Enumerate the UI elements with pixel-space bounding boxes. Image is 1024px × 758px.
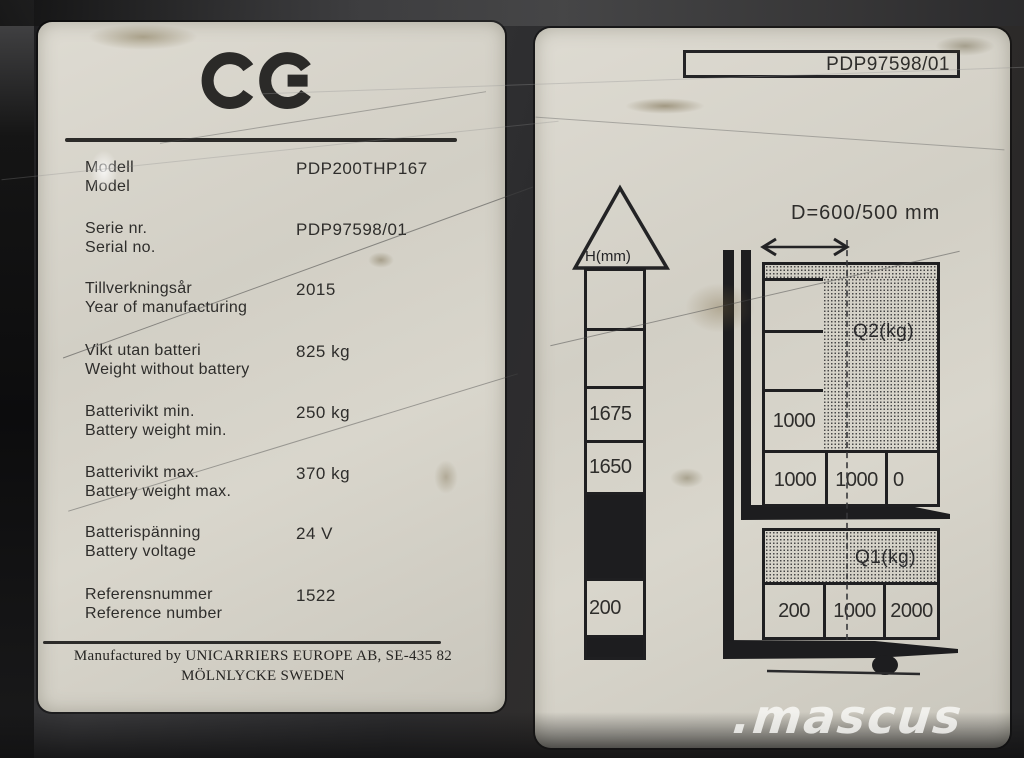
divider-line [65, 138, 457, 142]
stain [625, 98, 705, 114]
fork-tine [723, 640, 958, 659]
mast-inner-bar [741, 250, 751, 512]
mascus-watermark: .mascus [730, 690, 966, 745]
q2-cell: 1000 [765, 389, 823, 450]
q1-cell: 1000 [823, 585, 883, 637]
spec-row-serial: Serie nr. Serial no. PDP97598/01 [85, 219, 485, 257]
q2-hatch-area [823, 278, 937, 450]
photo-of-nameplates: Modell Model PDP200THP167 Serie nr. Seri… [0, 0, 1024, 758]
q1-cell: 200 [765, 585, 823, 637]
spec-row-reference: Referensnummer Reference number 1522 [85, 585, 485, 623]
label-sv: Batterispänning [85, 523, 485, 542]
q1-cell: 2000 [883, 585, 937, 637]
load-wheel-icon [872, 655, 898, 675]
capacity-plate: PDP97598/01 D=600/500 mm H(mm) 1675 [535, 28, 1010, 748]
mast-outer-bar [723, 250, 734, 647]
lift-height-scale: 1675 1650 200 [584, 268, 646, 660]
value: 825 kg [296, 342, 350, 362]
height-cell-filled [587, 492, 643, 578]
value: 370 kg [296, 464, 350, 484]
q1-title: Q1(kg) [855, 547, 916, 569]
hatch-strip [765, 265, 937, 278]
spec-row-year: Tillverkningsår Year of manufacturing 20… [85, 279, 485, 317]
label-en: Year of manufacturing [85, 298, 485, 317]
scratch-line [63, 187, 533, 359]
q2-capacity-table: Q2(kg) 1000 1000 1000 0 [762, 262, 940, 507]
label-sv: Tillverkningsår [85, 279, 485, 298]
serial-number-box: PDP97598/01 [683, 50, 960, 78]
label-en: Serial no. [85, 238, 485, 257]
d-arrowhead-left [763, 239, 776, 255]
q1-capacity-table: Q1(kg) 200 1000 2000 [762, 528, 940, 640]
q2-cell: 1000 [825, 450, 885, 507]
q2-cell: 0 [885, 450, 937, 507]
spec-plate: Modell Model PDP200THP167 Serie nr. Seri… [38, 22, 505, 712]
height-cell [587, 328, 643, 386]
load-center-dashed-line [846, 240, 848, 640]
value: PDP97598/01 [296, 220, 407, 240]
ce-mark-icon [198, 40, 326, 122]
stain [685, 283, 755, 333]
label-en: Weight without battery [85, 360, 485, 379]
label-sv: Referensnummer [85, 585, 485, 604]
spec-row-weight: Vikt utan batteri Weight without battery… [85, 341, 485, 379]
height-unit-label: H(mm) [585, 248, 631, 265]
label-en: Battery weight max. [85, 482, 485, 501]
height-cell: 1675 [587, 386, 643, 440]
spec-row-battery-min: Batterivikt min. Battery weight min. 250… [85, 402, 485, 440]
spec-row-voltage: Batterispänning Battery voltage 24 V [85, 523, 485, 561]
label-sv: Vikt utan batteri [85, 341, 485, 360]
label-en: Battery voltage [85, 542, 485, 561]
value: 250 kg [296, 403, 350, 423]
spec-row-model: Modell Model PDP200THP167 [85, 158, 485, 196]
scratch-line [536, 117, 1005, 151]
load-distance-label: D=600/500 mm [791, 202, 940, 225]
value: PDP200THP167 [296, 159, 428, 179]
divider-line [43, 641, 441, 644]
height-cell [587, 271, 643, 328]
height-cell: 200 [587, 578, 643, 635]
label-sv: Serie nr. [85, 219, 485, 238]
q2-cell: 1000 [765, 450, 825, 507]
q2-title: Q2(kg) [853, 321, 914, 343]
q2-cell [765, 330, 823, 389]
label-en: Battery weight min. [85, 421, 485, 440]
stain [88, 24, 198, 50]
q2-cell [765, 278, 823, 330]
label-sv: Batterivikt max. [85, 463, 485, 482]
manufacturer-line2: MÖLNLYCKE SWEDEN [48, 668, 478, 685]
manufacturer-line1: Manufactured by UNICARRIERS EUROPE AB, S… [48, 648, 478, 665]
height-cell: 1650 [587, 440, 643, 492]
value: 2015 [296, 280, 336, 300]
height-cell-filled [587, 635, 643, 657]
label-en: Model [85, 177, 485, 196]
label-en: Reference number [85, 604, 485, 623]
spec-row-battery-max: Batterivikt max. Battery weight max. 370… [85, 463, 485, 501]
value: 1522 [296, 586, 336, 606]
height-arrow-icon [575, 188, 667, 268]
stain [670, 468, 704, 488]
ground-line [767, 671, 920, 674]
dark-left-edge [0, 0, 34, 758]
label-sv: Batterivikt min. [85, 402, 485, 421]
value: 24 V [296, 524, 333, 544]
